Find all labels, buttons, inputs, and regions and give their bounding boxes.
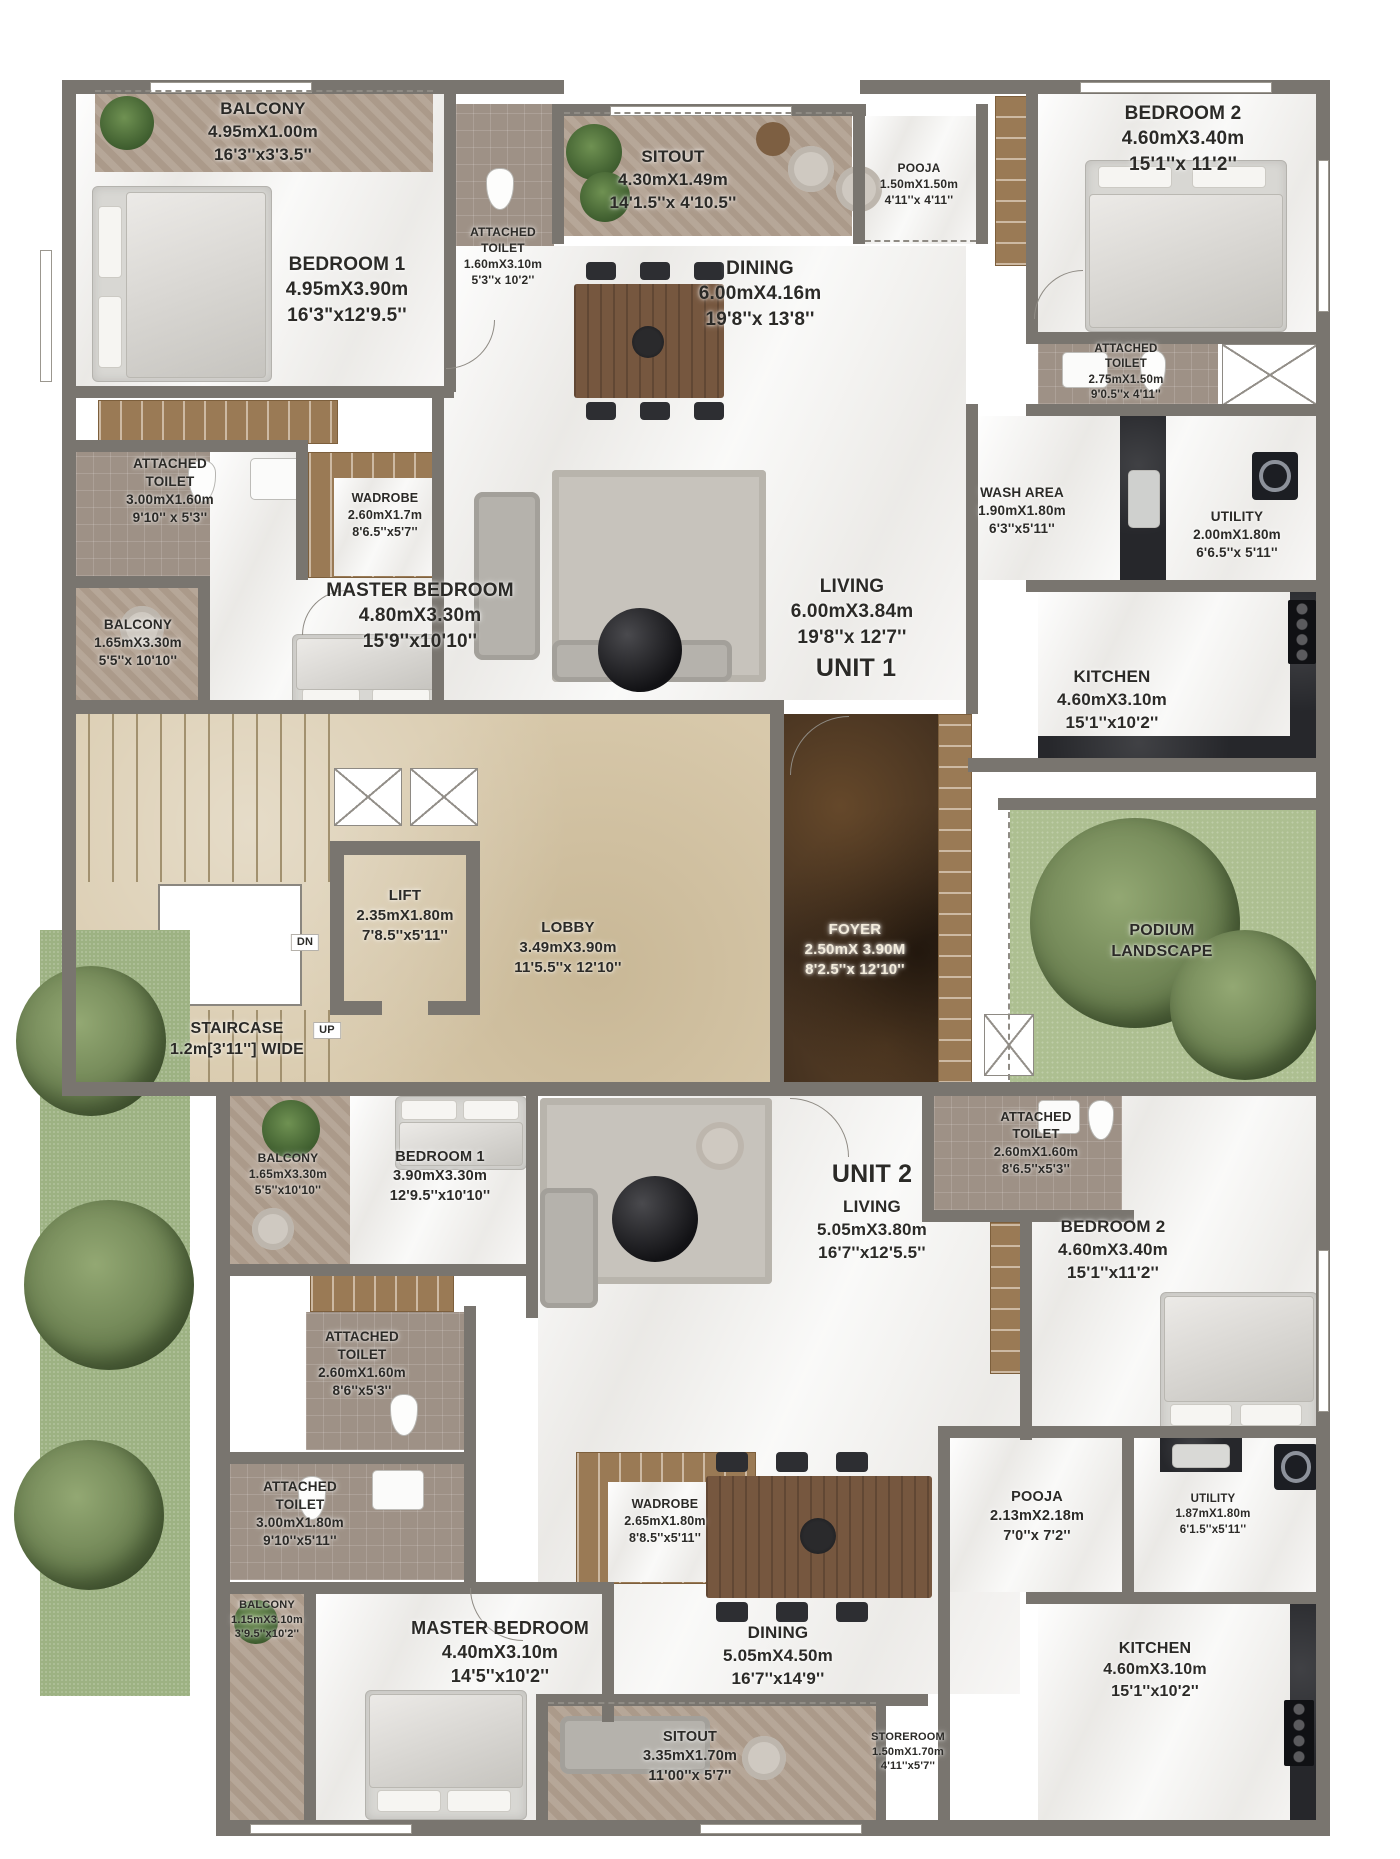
wall: [226, 1264, 526, 1276]
duvet: [369, 1694, 523, 1788]
wall: [938, 1426, 1330, 1438]
dining-u2-chair: [836, 1602, 868, 1622]
dining-u1-chair: [640, 262, 670, 280]
kitchen-u1-counter-bottom: [1038, 736, 1290, 758]
wall: [464, 1306, 476, 1592]
sitout-u2-chair: [742, 1736, 786, 1780]
wall: [1122, 1426, 1134, 1598]
pillow: [1240, 1404, 1302, 1426]
dining-u1-chair: [586, 262, 616, 280]
open-edge: [95, 90, 433, 92]
room-label-u1-toilet-master: ATTACHEDTOILET3.00mX1.60m9'10'' x 5'3'': [126, 455, 214, 527]
lift-wall: [330, 841, 344, 1015]
washing-machine-u1: [1252, 452, 1298, 500]
window: [610, 106, 792, 116]
stove-u2: [1284, 1700, 1314, 1766]
room-label-u1-utility: UTILITY2.00mX1.80m6'6.5''x 5'11'': [1193, 508, 1281, 562]
room-label-u1-bedroom-2: BEDROOM 24.60mX3.40m15'1''x 11'2'': [1122, 101, 1245, 177]
wall: [1026, 1592, 1330, 1604]
washing-machine-u2: [1274, 1444, 1318, 1490]
open-edge: [548, 1702, 876, 1704]
dining-u1-chair: [694, 402, 724, 420]
wardrobe-bed1-u2: [310, 1270, 454, 1312]
room-label-u1-living: LIVING6.00mX3.84m19'8''x 12'7'': [791, 574, 914, 650]
room-label-u1-master-bedroom: MASTER BEDROOM4.80mX3.30m15'9''x10'10'': [326, 578, 514, 654]
room-label-u2-bedroom-2: BEDROOM 24.60mX3.40m15'1''x11'2'': [1058, 1216, 1168, 1284]
room-label-u2-storeroom: STOREROOM1.50mX1.70m4'11''x5'7'': [871, 1730, 945, 1774]
shaft-right: [410, 768, 478, 826]
wall: [998, 798, 1330, 810]
room-label-u2-toilet-bedroom-2: ATTACHEDTOILET2.60mX1.60m8'6.5''x5'3'': [994, 1108, 1079, 1178]
room-label-u2-balcony-2: BALCONY1.15mX3.10m3'9.5''x10'2'': [231, 1598, 303, 1642]
open-edge: [1008, 812, 1010, 1080]
dining-u2-chair: [716, 1602, 748, 1622]
pillow: [98, 296, 122, 368]
pillow: [447, 1790, 511, 1812]
wall: [216, 1096, 230, 1836]
room-label-u1-wadrobe: WADROBE2.60mX1.7m8'6.5''x5'7'': [348, 490, 422, 540]
room-label-u2-pooja: POOJA2.13mX2.18m7'0''x 7'2'': [990, 1488, 1084, 1546]
room-label-u1-balcony-2: BALCONY1.65mX3.30m5'5''x 10'10'': [94, 616, 182, 670]
room-label-u2-utility: UTILITY1.87mX1.80m6'1.5''x5'11'': [1175, 1492, 1250, 1538]
wall: [1020, 1210, 1032, 1440]
kitchen-u1-sink: [1128, 470, 1160, 528]
wall: [526, 1096, 538, 1318]
kitchen-u2-floor: [1038, 1604, 1316, 1820]
wall: [62, 440, 308, 452]
wall: [296, 440, 308, 580]
wall: [770, 700, 784, 1094]
tree-garden-2: [24, 1200, 194, 1370]
dining-u2-chair: [776, 1452, 808, 1472]
wall: [1316, 1096, 1330, 1836]
room-label-u2-toilet-master: ATTACHEDTOILET3.00mX1.80m9'10''x5'11'': [256, 1478, 344, 1550]
balcony1-u2-chair: [252, 1208, 294, 1250]
room-label-u2-dining: DINING5.05mX4.50m16'7''x14'9'': [723, 1622, 833, 1690]
duvet: [1164, 1296, 1314, 1402]
pillow: [463, 1100, 519, 1120]
wall: [432, 392, 444, 714]
dining-u2-chair: [776, 1602, 808, 1622]
wall: [1026, 580, 1330, 592]
dining-u2-chair: [836, 1452, 868, 1472]
room-label-u1-toilet-bedroom-2: ATTACHEDTOILET2.75mX1.50m9'0.5''x 4'11'': [1088, 342, 1163, 404]
wall: [1026, 332, 1330, 344]
dining-u2-plate: [800, 1518, 836, 1554]
pillow: [98, 206, 122, 278]
room-label-u1-sitout: SITOUT4.30mX1.49m14'1.5''x 4'10.5'': [609, 146, 736, 214]
window: [40, 250, 52, 382]
wall: [62, 1082, 1330, 1096]
dining-u1-chair: [586, 402, 616, 420]
room-label-unit-2: UNIT 2: [832, 1158, 912, 1192]
room-label-u2-sitout: SITOUT3.35mX1.70m11'00''x 5'7'': [643, 1728, 737, 1786]
stairs-upper: [88, 714, 332, 882]
wall: [1316, 774, 1330, 1096]
utility-u2-sink: [1172, 1444, 1230, 1468]
foyer-wood-panel: [938, 714, 972, 1084]
pillow: [401, 1100, 457, 1120]
room-label-staircase: STAIRCASE1.2m[3'11''] WIDE: [170, 1018, 304, 1061]
stove-u1: [1288, 600, 1316, 664]
toilet-master-u2-sink: [372, 1470, 424, 1510]
room-label-u2-wadrobe: WADROBE2.65mX1.80m8'8.5''x5'11'': [624, 1496, 705, 1546]
room-label-unit-1: UNIT 1: [816, 652, 896, 686]
plant-balcony1-u1: [100, 96, 154, 150]
wall: [968, 758, 1330, 772]
dining-u2-chair: [716, 1452, 748, 1472]
lift-wall: [466, 841, 480, 1015]
wall: [1026, 404, 1330, 416]
room-label-dn: DN: [291, 934, 319, 951]
room-label-up: UP: [313, 1022, 341, 1039]
living-u1-table: [598, 608, 682, 692]
shower-bed2-u1: [1222, 344, 1318, 406]
window: [1318, 160, 1329, 312]
room-label-u1-bedroom-1: BEDROOM 14.95mX3.90m16'3"x12'9.5'': [286, 252, 409, 328]
wall: [62, 700, 780, 714]
room-label-u2-bedroom-1: BEDROOM 13.90mX3.30m12'9.5''x10'10'': [390, 1148, 491, 1206]
room-label-u1-kitchen: KITCHEN4.60mX3.10m15'1''x10'2'': [1057, 666, 1167, 734]
room-label-u2-toilet-bedroom-1: ATTACHEDTOILET2.60mX1.60m8'6''x5'3'': [318, 1328, 406, 1400]
room-label-foyer: FOYER2.50mX 3.90M8'2.5''x 12'10'': [805, 920, 906, 980]
wardrobe-bed1-u1: [98, 400, 338, 444]
room-label-podium-landscape: PODIUMLANDSCAPE: [1111, 920, 1212, 963]
sitout-u1-chair-1: [788, 146, 834, 192]
wall: [536, 1694, 928, 1706]
lift-wall: [330, 1001, 382, 1015]
living-u2-sofa: [540, 1188, 598, 1308]
wall: [976, 104, 988, 244]
room-label-lobby: LOBBY3.49mX3.90m11'5.5''x 12'10'': [514, 918, 621, 978]
window: [700, 1824, 862, 1834]
dining-u1-chair: [640, 402, 670, 420]
tree-garden-3: [14, 1440, 164, 1590]
wall: [198, 576, 210, 714]
wall: [536, 1694, 548, 1822]
wall: [216, 1582, 614, 1594]
dining-u1-plate: [632, 326, 664, 358]
pillow: [377, 1790, 441, 1812]
wall: [62, 714, 76, 1096]
shaft-left: [334, 768, 402, 826]
pillow: [1170, 1404, 1232, 1426]
wall: [62, 576, 210, 588]
duvet: [1089, 194, 1283, 328]
open-edge: [564, 112, 852, 114]
window: [1080, 82, 1272, 93]
duvet: [126, 192, 266, 378]
room-label-lift: LIFT2.35mX1.80m7'8.5''x5'11'': [356, 886, 453, 946]
wall: [304, 1594, 316, 1822]
living-u2-chair: [696, 1122, 744, 1170]
room-label-u2-master-bedroom: MASTER BEDROOM4.40mX3.10m14'5''x10'2'': [411, 1616, 589, 1688]
living-u2-table: [612, 1176, 698, 1262]
window: [250, 1824, 412, 1834]
wall: [966, 404, 978, 714]
room-label-u1-dining: DINING6.00mX4.16m19'8''x 13'8'': [699, 256, 822, 332]
room-label-u1-pooja: POOJA1.50mX1.50m4'11''x 4'11'': [880, 160, 958, 208]
room-label-u1-wash-area: WASH AREA1.90mX1.80m6'3''x5'11'': [978, 484, 1066, 538]
sitout-u1-side-table: [756, 122, 790, 156]
room-label-u1-balcony-1: BALCONY4.95mX1.00m16'3''x3'3.5'': [208, 98, 318, 166]
lift-wall: [428, 1001, 480, 1015]
room-label-u2-kitchen: KITCHEN4.60mX3.10m15'1''x10'2'': [1103, 1638, 1207, 1702]
open-edge: [865, 240, 976, 242]
floor-plan: BALCONY4.95mX1.00m16'3''x3'3.5''BEDROOM …: [0, 0, 1400, 1859]
wall: [853, 104, 865, 244]
room-label-u2-living: LIVING5.05mX3.80m16'7''x12'5.5'': [817, 1196, 927, 1264]
lift-wall: [330, 841, 480, 855]
wardrobe-bed2-u2: [990, 1222, 1024, 1374]
room-label-u2-balcony-1: BALCONY1.65mX3.30m5'5''x10'10'': [249, 1150, 327, 1198]
wall: [552, 104, 564, 244]
window: [1318, 1250, 1329, 1412]
wall: [62, 386, 454, 398]
wall: [226, 1452, 476, 1464]
room-label-u1-toilet-bedroom-1: ATTACHEDTOILET1.60mX3.10m5'3''x 10'2'': [464, 224, 542, 288]
